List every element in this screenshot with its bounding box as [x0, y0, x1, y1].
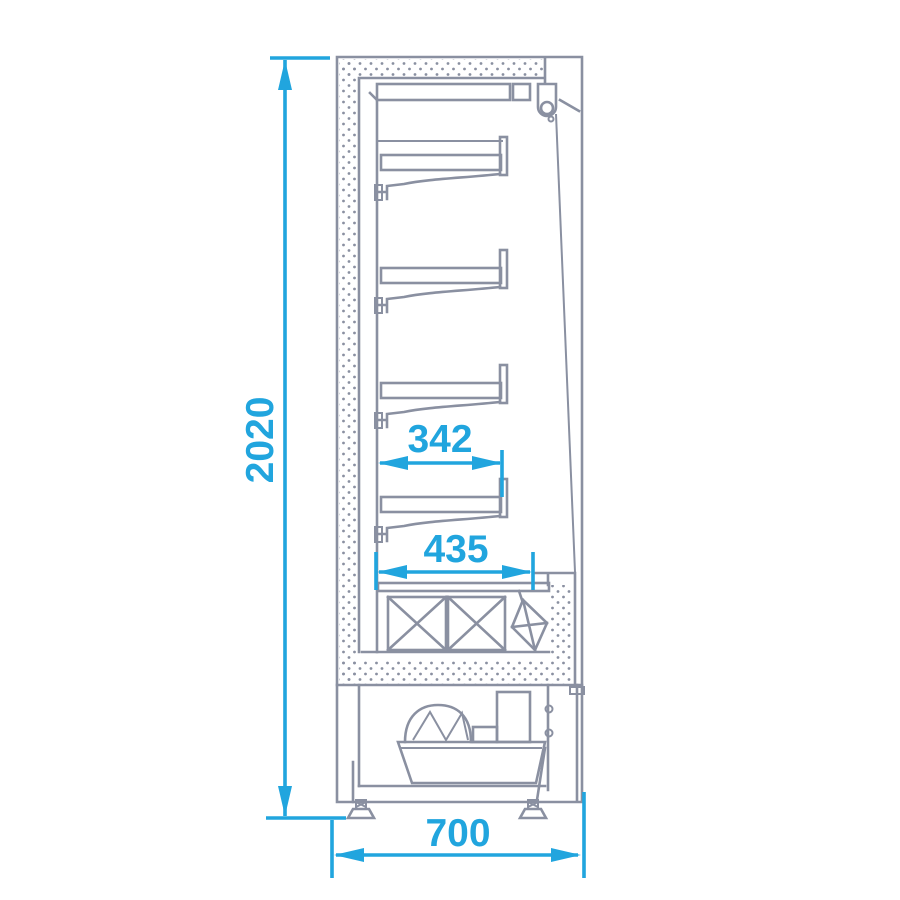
- drain-tray: [398, 742, 545, 783]
- overall-depth-label: 700: [425, 812, 490, 855]
- dimension-shelf-depth: 342: [378, 418, 502, 497]
- dimension-overall-depth: 700: [332, 792, 584, 878]
- evaporator-coil-1: [388, 597, 446, 650]
- arrow-right-icon: [551, 848, 581, 862]
- arrow-left-icon: [334, 848, 364, 862]
- shelves: [375, 137, 507, 542]
- well-depth-label: 435: [423, 528, 488, 571]
- arrow-down-icon: [278, 786, 292, 816]
- electrical-box: [497, 692, 530, 742]
- arrow-up-icon: [278, 60, 292, 90]
- relay-box: [473, 727, 497, 742]
- ceiling-air-duct: [377, 84, 510, 100]
- evaporator: [388, 591, 547, 650]
- ballast-box: [513, 84, 530, 100]
- arrow-left-icon: [378, 456, 408, 470]
- shelf-1: [375, 137, 507, 200]
- machine-compartment: [348, 685, 577, 818]
- drawing-canvas: 2020 342 435 700: [0, 0, 900, 900]
- fan-damper: [512, 591, 547, 650]
- air-deflector: [560, 100, 579, 111]
- lamp-clip: [549, 117, 554, 122]
- dimension-well-depth: 435: [376, 528, 533, 590]
- light-tube-icon: [541, 102, 553, 114]
- shelf-depth-label: 342: [407, 418, 472, 461]
- cabinet-section-drawing: 2020 342 435 700: [0, 0, 900, 900]
- canopy: [377, 84, 579, 122]
- compressor: [405, 705, 471, 742]
- arrow-left-icon: [377, 565, 407, 579]
- dimension-overall-height: 2020: [239, 58, 346, 818]
- overall-height-label: 2020: [239, 397, 282, 484]
- shelf-2: [375, 250, 507, 313]
- arrow-right-icon: [502, 565, 532, 579]
- air-curtain-line: [556, 114, 575, 572]
- evaporator-coil-2: [448, 597, 505, 650]
- arrow-right-icon: [472, 456, 502, 470]
